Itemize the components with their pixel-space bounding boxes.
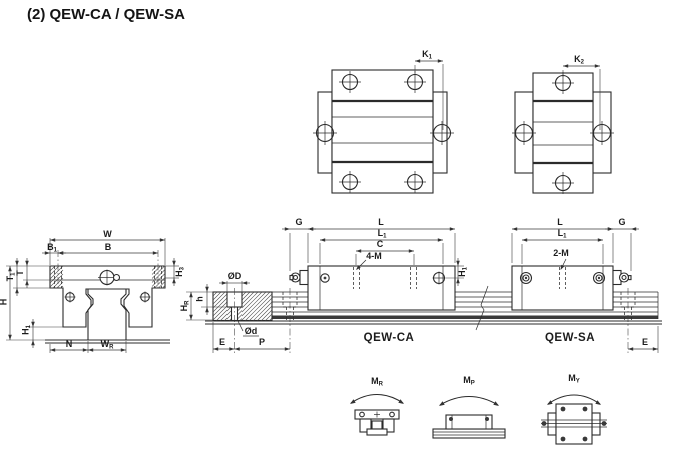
dim-label-od: ØD [228,271,242,281]
dim-label-e: E [642,337,648,347]
rail-cross-section [88,289,126,340]
technical-drawing-canvas: (2) QEW-CA / QEW-SA K1 [0,0,675,449]
dim-label-l: L [378,217,384,227]
rail-base-band [272,316,658,320]
top-view-qew-ca: K1 [313,49,454,193]
moment-arc-arrow [351,395,403,404]
grease-nipple-icon [290,271,308,285]
dim-label-b1: B1 [47,242,58,254]
dim-label-t: T [15,270,25,276]
side-view-qew-ca: G L L1 C 4-M H1 QEW-CA [282,217,469,344]
dim-label-t1: T1 [5,272,17,282]
moment-label-mr: MR [371,376,384,388]
grease-nipple-icon [613,271,631,285]
dim-label-h: H [0,299,9,306]
block-front-icon [355,410,399,435]
dim-label-wr: WR [101,339,115,351]
dim-label-h1-side: H1 [457,266,469,277]
dim-label-e: E [219,337,225,347]
moment-my: MY [541,373,607,444]
dim-label-n: N [66,339,73,349]
view-caption-qew-ca: QEW-CA [364,332,415,344]
dim-label-p: P [259,337,265,347]
dim-label-l: L [557,217,563,227]
block-side-icon [433,415,505,438]
dim-label-h3: H3 [174,266,186,277]
block-top-icon [541,404,607,444]
moment-label-mp: MP [463,375,475,387]
thread-callout-2m: 2-M [553,248,569,258]
top-view-qew-sa: K2 [512,54,614,194]
mounting-baseline [205,321,662,324]
dim-label-w: W [103,229,112,239]
dim-label-g: G [618,217,625,227]
dim-label-l1: L1 [378,228,388,240]
page-title: (2) QEW-CA / QEW-SA [27,6,185,23]
side-view-qew-sa: L L1 2-M G E QEW-SA [512,217,658,353]
moment-arc-arrow [548,395,600,404]
moment-arc-arrow [440,397,498,406]
view-caption-qew-sa: QEW-SA [545,332,595,344]
moment-mp: MP [433,375,505,438]
dim-label-g: G [295,217,302,227]
front-view: W B1 B T T1 H H1 H3 N WR [0,229,186,353]
dim-label-k1: K1 [422,49,433,61]
catalog-drawing-page: (2) QEW-CA / QEW-SA K1 [0,0,675,449]
end-cap-right [433,92,447,173]
dim-label-h1: H1 [21,324,33,335]
block-side [308,266,455,310]
moment-diagrams: MR MP [350,373,607,444]
dim-label-b: B [105,242,112,252]
dim-label-k2: K2 [574,54,585,66]
dim-label-od-small: Ød [245,326,258,336]
dim-label-h-depth: h [195,296,205,302]
dim-label-hr: HR [179,300,191,312]
rail-break-line [476,286,488,330]
moment-label-my: MY [568,373,580,385]
dim-label-c: C [377,239,384,249]
moment-mr: MR [350,376,404,435]
dim-label-l1: L1 [558,228,568,240]
thread-callout-4m: 4-M [366,251,382,261]
